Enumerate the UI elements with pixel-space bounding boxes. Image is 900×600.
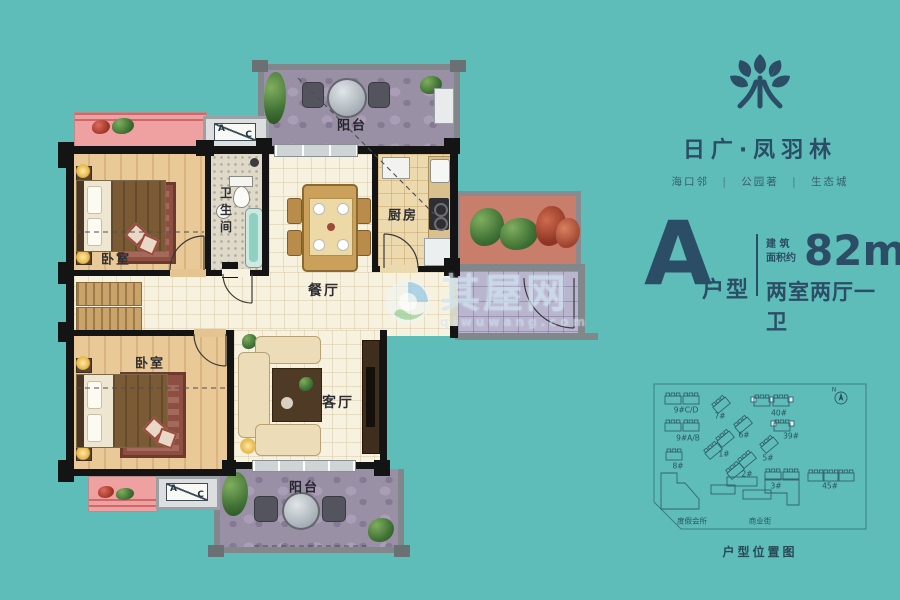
area-value: 82m2 — [804, 226, 900, 275]
room-label-living: 客厅 — [322, 392, 354, 412]
room-label-bedroom-top: 卧室 — [101, 249, 131, 268]
building-label-6: 6# — [738, 431, 749, 440]
brand-logo-icon — [718, 52, 802, 124]
site-plan: N 9#C/D 7# 40# 9#A/B 6# 39# 1# 5# 8# 2# … — [653, 383, 867, 535]
floor-plan: A C A C — [0, 0, 600, 600]
building-label-9ab: 9#A/B — [676, 434, 700, 443]
building-label-2: 2# — [741, 470, 752, 479]
room-label-dining: 餐厅 — [308, 280, 340, 300]
building-label-39: 39# — [783, 432, 799, 441]
watermark-logo-icon — [384, 278, 432, 326]
room-label-bedroom-bottom: 卧室 — [135, 353, 165, 372]
watermark-subtext: qiwuwang.com — [440, 315, 589, 329]
room-label-balcony-top: 阳台 — [337, 115, 367, 134]
site-plan-caption: 户型位置图 — [722, 543, 797, 560]
building-label-40: 40# — [771, 409, 787, 418]
area-caption-line1: 建 筑 — [766, 238, 796, 252]
unit-info-divider — [756, 234, 758, 296]
watermark: 其屋网 qiwuwang.com — [384, 274, 589, 329]
area-caption: 建 筑 面积约 — [766, 238, 796, 265]
compass-label: N — [832, 387, 837, 394]
area-label-clubhouse: 度假会所 — [677, 516, 707, 527]
room-label-balcony-bottom: 阳台 — [289, 477, 319, 496]
subtitle-separator: | — [792, 176, 798, 188]
building-label-45: 45# — [822, 482, 838, 491]
unit-info-block: A 户型 建 筑 面积约 82m2 两室两厅一卫 — [644, 226, 890, 306]
area-label-commercial-street: 商业街 — [749, 516, 772, 527]
subtitle-separator: | — [722, 176, 728, 188]
building-label-8: 8# — [672, 462, 683, 471]
building-label-1: 1# — [718, 450, 729, 459]
building-label-9cd: 9#C/D — [674, 406, 699, 415]
poster-canvas: A C A C — [0, 0, 900, 600]
brand-title: 日广·凤羽林 — [620, 132, 900, 164]
building-label-5: 5# — [762, 454, 773, 463]
watermark-text: 其屋网 — [440, 274, 589, 314]
unit-type-suffix: 户型 — [702, 272, 750, 304]
brand-subtitle-part: 生态城 — [811, 176, 849, 188]
room-label-kitchen: 厨房 — [388, 205, 418, 224]
brand-subtitle-part: 海口邻 — [672, 176, 710, 188]
compass-icon — [835, 392, 847, 404]
area-caption-line2: 面积约 — [766, 252, 796, 266]
building-label-3: 3# — [770, 482, 781, 491]
layout-summary: 两室两厅一卫 — [766, 276, 890, 336]
brand-block: 日广·凤羽林 海口邻 | 公园著 | 生态城 — [620, 52, 900, 189]
dashed-sightline — [76, 78, 434, 546]
brand-subtitle-part: 公园著 — [741, 176, 779, 188]
room-label-bathroom: 卫生间 — [218, 187, 235, 238]
building-label-7: 7# — [714, 412, 725, 421]
brand-subtitle: 海口邻 | 公园著 | 生态城 — [620, 174, 900, 189]
